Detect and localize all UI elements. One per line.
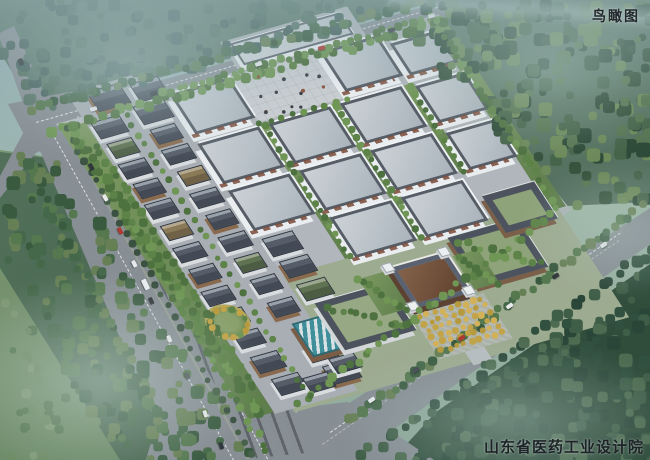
view-type-label: 鸟瞰图: [592, 6, 640, 26]
design-institute-label: 山东省医药工业设计院: [484, 436, 644, 457]
birds-eye-rendering: 鸟瞰图 山东省医药工业设计院: [0, 0, 650, 460]
